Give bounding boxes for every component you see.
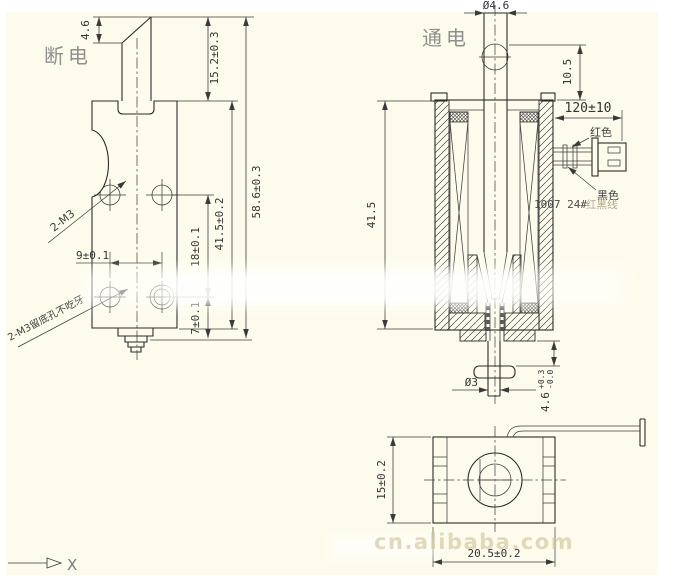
dim-body-height: 41.5±0.2 bbox=[213, 198, 226, 251]
case-bottom-right bbox=[505, 313, 539, 330]
case-bottom-left bbox=[449, 313, 485, 330]
dim-base-depth: 15±0.2 bbox=[375, 460, 388, 500]
note-red-wire: 红色 bbox=[590, 125, 612, 139]
wire-spec: 1007 24# bbox=[534, 198, 587, 211]
dim-hole-spacing-h: 9±0.1 bbox=[76, 249, 109, 262]
wire-spec-suffix: 红黑线 bbox=[586, 198, 618, 211]
engineering-drawing: 断电 4.6 15.2±0.3 58.6±0.3 41.5±0.2 18±0.1 bbox=[0, 0, 681, 580]
dim-hole-spacing-v: 18±0.1 bbox=[189, 227, 202, 267]
dim-hole-pos: 10.5 bbox=[561, 59, 574, 86]
dim-rod-dia: Ø4.6 bbox=[483, 0, 510, 12]
left-view-label: 断电 bbox=[44, 44, 92, 68]
dim-plunger-ext: 15.2±0.3 bbox=[208, 32, 221, 85]
right-view-label: 通电 bbox=[422, 26, 470, 50]
watermark-band-core bbox=[165, 272, 525, 303]
dim-wire-length: 120±10 bbox=[565, 101, 612, 116]
watermark-text: cn.alibaba.com bbox=[374, 530, 574, 554]
dim-shaft-dia: Ø3 bbox=[465, 376, 478, 389]
bottom-cap-right bbox=[504, 330, 535, 341]
bottom-cap-left bbox=[460, 330, 486, 341]
dim-stroke: 4.6 bbox=[539, 392, 552, 412]
dim-body-height-right: 41.5 bbox=[365, 202, 378, 229]
dim-stroke-tol-plus: +0.3 bbox=[537, 370, 546, 389]
dim-stroke-tol-minus: -0.0 bbox=[546, 370, 555, 389]
dim-total-height: 58.6±0.3 bbox=[250, 166, 263, 219]
axis-x-label: X bbox=[67, 556, 77, 574]
dim-hole-bottom: 7±0.1 bbox=[189, 301, 202, 334]
dim-bevel: 4.6 bbox=[79, 20, 92, 40]
drawing-page: 断电 4.6 15.2±0.3 58.6±0.3 41.5±0.2 18±0.1 bbox=[0, 0, 681, 580]
